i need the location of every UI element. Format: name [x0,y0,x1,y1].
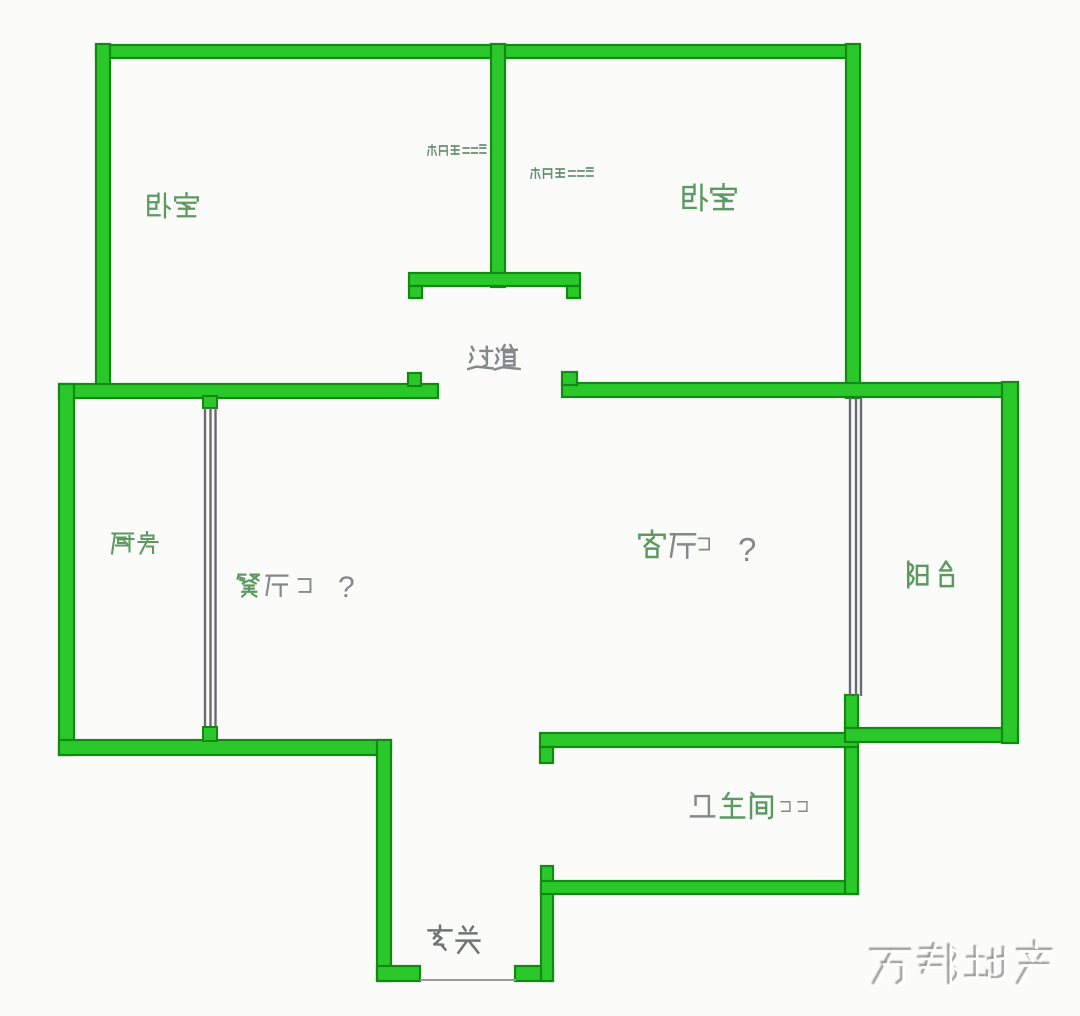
svg-text:?: ? [338,571,355,604]
svg-text:?: ? [738,531,756,568]
